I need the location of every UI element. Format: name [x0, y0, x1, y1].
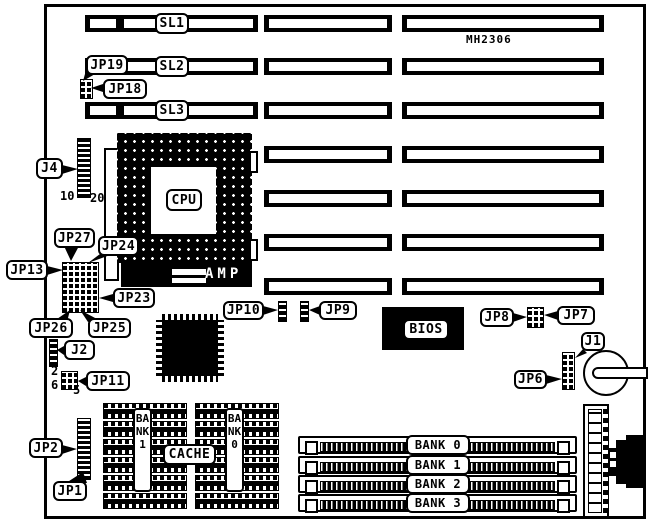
jumper-block-jp13-jp27 [62, 262, 99, 313]
slot-right-1 [402, 15, 604, 32]
jp23-callout: JP23 [113, 288, 155, 308]
board-model: MH2306 [466, 33, 512, 46]
j2-callout: J2 [64, 340, 95, 360]
slot-right-7 [402, 278, 604, 295]
power-connector [583, 404, 609, 518]
amp-connector-key-bottom [172, 278, 206, 283]
chipset-qfp [156, 314, 224, 382]
jp11-pin6-label: 6 [51, 378, 58, 392]
battery-tab [592, 367, 648, 379]
j2-connector [49, 339, 58, 367]
jp7-callout: JP7 [557, 306, 595, 325]
jp26-callout: JP26 [29, 318, 73, 338]
jp9-jumper [300, 301, 309, 322]
jp2-callout: JP2 [29, 438, 63, 458]
keyboard-connector-notch1 [610, 452, 616, 458]
jp8-jumper [527, 307, 544, 328]
jp11-pin5-label: 5 [73, 383, 80, 397]
j4-pin20-label: 20 [90, 191, 104, 205]
jp1-callout: JP1 [53, 481, 87, 501]
cache-label: CACHE [163, 444, 216, 465]
slot-right-3 [402, 102, 604, 119]
jp11-pin2-label: 2 [51, 364, 58, 378]
motherboard-diagram: CPU AMP 10 20 2 6 5 BIOS [0, 0, 653, 527]
cpu-socket-tab-top [249, 151, 258, 173]
jp6-callout: JP6 [514, 370, 547, 389]
jp6-j1-header [562, 352, 575, 390]
jp18-jumper [80, 79, 93, 99]
jp8-callout: JP8 [480, 308, 514, 327]
cpu-socket-tab-bottom [249, 239, 258, 261]
j4-callout: J4 [36, 158, 63, 179]
simm-bank1-label: BANK 1 [406, 455, 470, 475]
simm-bank3-label: BANK 3 [406, 493, 470, 513]
slot-mid-5 [264, 190, 392, 207]
j4-header [77, 138, 91, 198]
slot-mid-1 [264, 15, 392, 32]
jp18-callout: JP18 [103, 79, 147, 99]
keyboard-connector-notch2 [610, 461, 616, 467]
slot-mid-4 [264, 146, 392, 163]
amp-label: AMP [205, 266, 242, 282]
slot-mid-2 [264, 58, 392, 75]
jp24-callout: JP24 [98, 236, 139, 256]
simm-bank0-label: BANK 0 [406, 435, 470, 455]
jp9-callout: JP9 [319, 301, 357, 320]
jp13-callout: JP13 [6, 260, 48, 280]
j1-callout: J1 [581, 332, 605, 351]
j4-pin10-label: 10 [60, 189, 74, 203]
amp-connector-key-top [172, 269, 206, 275]
slot-sl1-label: SL1 [155, 13, 189, 34]
slot-sl2-label: SL2 [155, 56, 189, 77]
slot-sl3-label: SL3 [155, 100, 189, 121]
bios-label: BIOS [403, 319, 449, 340]
slot-mid-6 [264, 234, 392, 251]
slot-right-5 [402, 190, 604, 207]
jp19-callout: JP19 [86, 55, 128, 75]
cache-bank1-label: BANK 1 [133, 408, 152, 492]
jp25-callout: JP25 [88, 318, 131, 338]
slot-right-6 [402, 234, 604, 251]
simm-bank2-label: BANK 2 [406, 474, 470, 494]
slot-right-4 [402, 146, 604, 163]
jp27-callout: JP27 [54, 228, 95, 248]
cpu-label: CPU [166, 189, 202, 211]
jp11-callout: JP11 [86, 371, 130, 391]
cache-bank0-label: BANK 0 [225, 408, 244, 492]
jp2-header [77, 418, 91, 480]
jp10-callout: JP10 [223, 301, 264, 320]
jp10-jumper [278, 301, 287, 322]
slot-mid-3 [264, 102, 392, 119]
slot-mid-7 [264, 278, 392, 295]
slot-right-2 [402, 58, 604, 75]
